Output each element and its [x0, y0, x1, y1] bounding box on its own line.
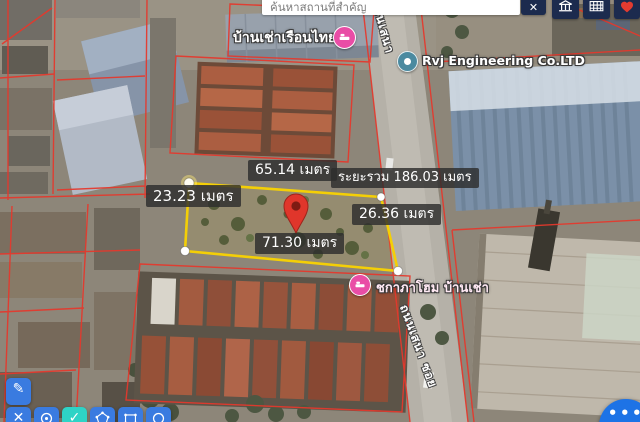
measurement-label-total: ระยะรวม 186.03 เมตร — [331, 168, 479, 188]
lodging-poi-icon[interactable] — [333, 26, 356, 49]
circle-icon — [150, 410, 167, 422]
pencil-icon: ✎ — [13, 378, 25, 396]
rectangle-icon — [122, 410, 139, 422]
dropped-pin-icon[interactable] — [281, 192, 311, 238]
bed-icon — [338, 31, 351, 44]
engineering-poi-icon[interactable] — [397, 51, 418, 72]
point-marker-tool-button[interactable] — [34, 407, 59, 422]
measurement-label-top: 65.14 เมตร — [248, 160, 337, 181]
rectangle-tool-button[interactable] — [118, 407, 143, 422]
lodging-poi-icon-2[interactable] — [349, 274, 371, 296]
ellipsis-icon: ••• — [608, 399, 640, 422]
search-close-button[interactable]: ✕ — [521, 0, 546, 15]
target-icon — [38, 410, 55, 422]
poi-label-lodging[interactable]: ชกาภาโฮม บ้านเช่า — [376, 277, 489, 298]
delete-measure-button[interactable]: ✕ — [6, 407, 31, 422]
favorite-button[interactable] — [614, 0, 640, 19]
circle-tool-button[interactable] — [146, 407, 171, 422]
bed-icon — [354, 279, 366, 291]
grid-icon — [588, 0, 605, 15]
check-icon: ✓ — [69, 407, 81, 422]
measurement-label-left: 23.23 เมตร — [146, 185, 241, 207]
close-icon: ✕ — [529, 1, 538, 14]
search-input[interactable] — [262, 0, 520, 15]
confirm-tool-button[interactable]: ✓ — [62, 407, 87, 422]
poi-label-engineering[interactable]: Rvj Engineering Co.LTD — [422, 53, 585, 68]
buildings-layer-button[interactable] — [552, 0, 579, 19]
edit-draw-button[interactable]: ✎ — [6, 378, 31, 405]
x-icon: ✕ — [13, 407, 25, 422]
heart-icon — [619, 0, 635, 15]
polygon-tool-button[interactable] — [90, 407, 115, 422]
polygon-icon — [94, 410, 111, 422]
measurement-label-right: 26.36 เมตร — [352, 204, 441, 225]
measurement-label-bottom: 71.30 เมตร — [255, 233, 344, 254]
map-screen: ถนนเสนา ถนนเสนา ซอย บ้านเช่าเรือนไทย Rvj… — [0, 0, 640, 422]
poi-dot-icon — [404, 58, 411, 65]
grid-layer-button[interactable] — [583, 0, 610, 19]
poi-label-rental-house[interactable]: บ้านเช่าเรือนไทย — [233, 27, 336, 49]
building-icon — [557, 0, 574, 15]
